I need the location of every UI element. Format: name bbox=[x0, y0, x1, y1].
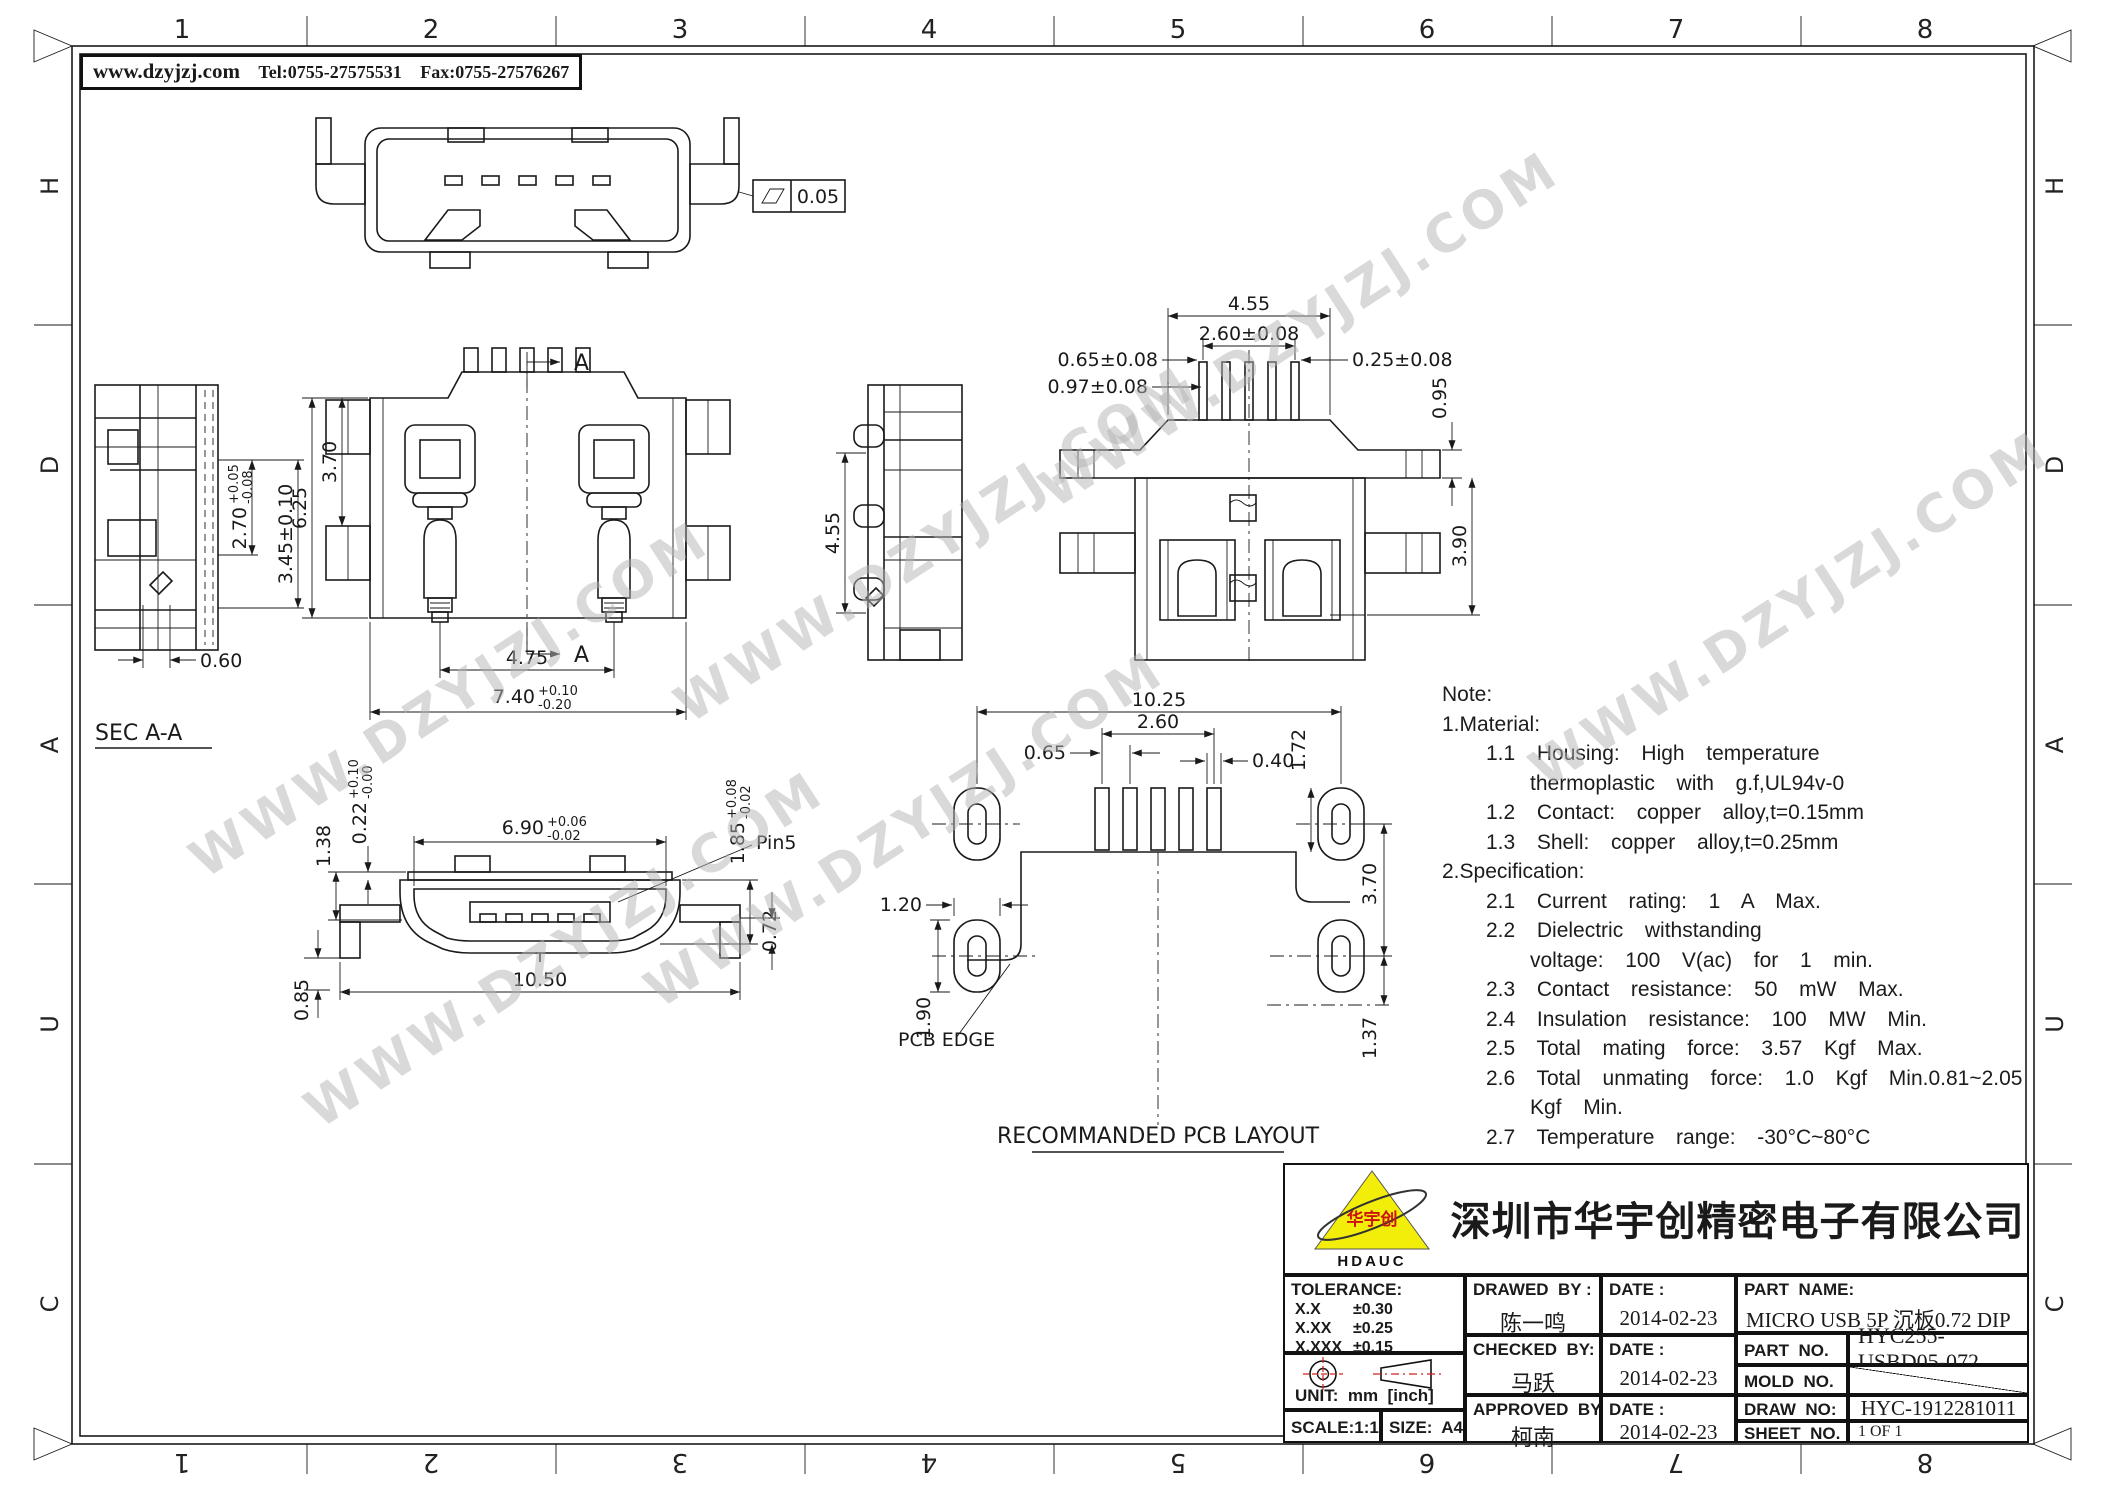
dim-4-55-rear: 4.55 bbox=[1228, 293, 1270, 315]
svg-text:1.38: 1.38 bbox=[313, 825, 335, 867]
svg-text:6.90: 6.90 bbox=[502, 817, 544, 839]
note-line: 1.3 Shell: copper alloy,t=0.25mm bbox=[1442, 828, 2032, 858]
draw-no-label-cell: DRAW NO: bbox=[1736, 1395, 1848, 1421]
front-face-view: Pin5 6.90 +0.06 -0.02 1.38 0.22 +0.10 -0… bbox=[291, 759, 796, 1021]
dim-3-70-pcb: 3.70 bbox=[1359, 863, 1381, 905]
note-line: 2.3 Contact resistance: 50 mW Max. bbox=[1442, 975, 2032, 1005]
approved-date-cell: DATE : 2014-02-23 bbox=[1601, 1395, 1736, 1443]
checked-by-label: CHECKED BY: bbox=[1467, 1337, 1599, 1360]
date-label: DATE : bbox=[1603, 1337, 1734, 1360]
dim-4-55-side: 4.55 bbox=[822, 512, 844, 554]
drawn-by-label: DRAWED BY : bbox=[1467, 1277, 1599, 1300]
dim-0-85: 0.85 bbox=[291, 979, 313, 1021]
flatness-icon bbox=[762, 189, 784, 203]
note-line: 2.7 Temperature range: -30°C~80°C bbox=[1442, 1123, 2032, 1153]
note-line: 2.4 Insulation resistance: 100 MW Min. bbox=[1442, 1005, 2032, 1035]
drawn-date: 2014-02-23 bbox=[1603, 1306, 1734, 1331]
projection-unit-cell: UNIT: mm [inch] bbox=[1283, 1353, 1465, 1410]
pcb-layout-view: 10.25 2.60 0.65 0.40 1.72 3.70 bbox=[880, 689, 1392, 1152]
dim-0-25: 0.25±0.08 bbox=[1352, 349, 1453, 371]
top-plan-view: 0.05 bbox=[316, 118, 845, 268]
part-no-label-cell: PART NO. bbox=[1736, 1333, 1848, 1365]
svg-text:1.85: 1.85 bbox=[727, 822, 749, 864]
svg-text:2.70: 2.70 bbox=[229, 507, 251, 549]
approved-by-cell: APPROVED BY: 柯南 bbox=[1465, 1395, 1601, 1443]
note-line: 1.Material: bbox=[1442, 710, 2032, 740]
svg-text:-0.20: -0.20 bbox=[538, 698, 572, 713]
dim-2-60: 2.60±0.08 bbox=[1199, 323, 1300, 345]
note-line: 2.6 Total unmating force: 1.0 Kgf Min.0.… bbox=[1442, 1064, 2032, 1094]
scale-cell: SCALE:1:1 bbox=[1283, 1410, 1381, 1443]
dim-3-90: 3.90 bbox=[1449, 525, 1471, 567]
drawing-sheet: 1 2 3 4 5 6 7 8 1 2 3 4 5 6 7 8 H D A U … bbox=[0, 0, 2105, 1488]
svg-text:0.95: 0.95 bbox=[1429, 377, 1451, 419]
title-block: 华宇创 HDAUC 深圳市华宇创精密电子有限公司 TOLERANCE: X.X±… bbox=[1283, 1163, 2029, 1443]
dim-0-95: 0.95 bbox=[1429, 377, 1451, 419]
dim-1-37: 1.37 bbox=[1359, 1017, 1381, 1059]
pcb-layout-title: RECOMMANDED PCB LAYOUT bbox=[997, 1124, 1320, 1149]
mold-no-label-cell: MOLD NO. bbox=[1736, 1365, 1848, 1395]
note-line: 2.5 Total mating force: 3.57 Kgf Max. bbox=[1442, 1034, 2032, 1064]
svg-text:+0.10: +0.10 bbox=[538, 684, 578, 699]
dim-7-40: 7.40 +0.10 -0.20 bbox=[493, 684, 578, 713]
note-line: 2.2 Dielectric withstanding bbox=[1442, 916, 2032, 946]
section-arrow-label-bottom: A bbox=[574, 643, 589, 668]
svg-text:-0.02: -0.02 bbox=[739, 785, 754, 819]
scale-label: SCALE:1:1 bbox=[1285, 1412, 1379, 1438]
size-cell: SIZE: A4 bbox=[1381, 1410, 1465, 1443]
section-aa-view: 2.70 +0.05 -0.08 3.45±0.10 0.60 SEC A-A bbox=[95, 385, 304, 748]
company-logo: 华宇创 HDAUC bbox=[1297, 1169, 1447, 1269]
section-arrow-label-top: A bbox=[574, 351, 589, 376]
part-no-label: PART NO. bbox=[1738, 1335, 1846, 1361]
date-label: DATE : bbox=[1603, 1397, 1734, 1420]
dim-2-60-pcb: 2.60 bbox=[1137, 711, 1179, 733]
dim-1-85: 1.85 +0.08 -0.02 bbox=[725, 779, 754, 864]
notes-block: Note: 1.Material: 1.1 Housing: High temp… bbox=[1442, 680, 2032, 1152]
dim-0-60: 0.60 bbox=[200, 650, 242, 672]
dim-1-38: 1.38 bbox=[313, 825, 335, 867]
approved-by-name: 柯南 bbox=[1467, 1420, 1599, 1452]
dim-1-20: 1.20 bbox=[880, 894, 922, 916]
checked-by-name: 马跃 bbox=[1467, 1366, 1599, 1398]
part-name-label: PART NAME: bbox=[1738, 1277, 2027, 1300]
side-view: 4.55 bbox=[822, 385, 962, 660]
flatness-callout: 0.05 bbox=[739, 180, 845, 212]
tolerance-cell: TOLERANCE: X.X±0.30 X.XX±0.25 X.XXX±0.15… bbox=[1283, 1275, 1465, 1353]
part-no-value-cell: HYC255-USBD05-072 bbox=[1848, 1333, 2029, 1365]
note-line: voltage: 100 V(ac) for 1 min. bbox=[1442, 946, 2032, 976]
dim-10-25: 10.25 bbox=[1132, 689, 1186, 711]
svg-text:0.85: 0.85 bbox=[291, 979, 313, 1021]
logo-cn-text: 华宇创 bbox=[1347, 1209, 1398, 1229]
rear-view: 4.55 2.60±0.08 0.65±0.08 0.97±0.08 0.25±… bbox=[1047, 293, 1480, 665]
draw-no-label: DRAW NO: bbox=[1738, 1397, 1846, 1420]
mold-no-label: MOLD NO. bbox=[1738, 1367, 1846, 1392]
sheet-no-value-cell: 1 OF 1 bbox=[1848, 1421, 2029, 1443]
dim-3-70: 3.70 bbox=[319, 441, 341, 483]
tol-val: ±0.25 bbox=[1353, 1320, 1393, 1338]
website-text: www.dzyjzj.com bbox=[93, 59, 240, 83]
tol-val: ±0.30 bbox=[1353, 1301, 1393, 1319]
dim-1-72: 1.72 bbox=[1288, 729, 1310, 771]
svg-text:3.70: 3.70 bbox=[319, 441, 341, 483]
dim-6-90: 6.90 +0.06 -0.02 bbox=[502, 815, 587, 844]
dim-0-72: 0.72 bbox=[759, 910, 781, 952]
sheet-no-label: SHEET NO. bbox=[1738, 1423, 1846, 1444]
checked-by-cell: CHECKED BY: 马跃 bbox=[1465, 1335, 1601, 1395]
note-line: Kgf Min. bbox=[1442, 1093, 2032, 1123]
dim-10-50: 10.50 bbox=[513, 969, 567, 991]
mold-no-blank-diagonal bbox=[1850, 1367, 2027, 1393]
note-line: 1.2 Contact: copper alloy,t=0.15mm bbox=[1442, 798, 2032, 828]
fax-text: Fax:0755-27576267 bbox=[420, 62, 569, 82]
drawn-by-name: 陈一鸣 bbox=[1467, 1306, 1599, 1338]
approved-date: 2014-02-23 bbox=[1603, 1420, 1734, 1445]
draw-no-value-cell: HYC-1912281011 bbox=[1848, 1395, 2029, 1421]
unit-label: UNIT: mm [inch] bbox=[1289, 1383, 1434, 1406]
note-line: 1.1 Housing: High temperature bbox=[1442, 739, 2032, 769]
checked-date-cell: DATE : 2014-02-23 bbox=[1601, 1335, 1736, 1395]
dim-0-65-rear: 0.65±0.08 bbox=[1057, 349, 1158, 371]
company-cell: 华宇创 HDAUC 深圳市华宇创精密电子有限公司 bbox=[1283, 1163, 2029, 1275]
dim-0-22: 0.22 +0.10 -0.00 bbox=[347, 759, 376, 844]
drawn-date-cell: DATE : 2014-02-23 bbox=[1601, 1275, 1736, 1335]
date-label: DATE : bbox=[1603, 1277, 1734, 1300]
svg-text:+0.10: +0.10 bbox=[347, 759, 362, 799]
svg-text:6.25: 6.25 bbox=[289, 487, 311, 529]
logo-abbr-text: HDAUC bbox=[1337, 1253, 1406, 1269]
svg-text:3.90: 3.90 bbox=[1449, 525, 1471, 567]
svg-text:-0.08: -0.08 bbox=[241, 470, 256, 504]
svg-text:+0.06: +0.06 bbox=[547, 815, 587, 830]
dim-0-97: 0.97±0.08 bbox=[1047, 376, 1148, 398]
mold-no-value-cell bbox=[1848, 1365, 2029, 1395]
pcb-edge-label: PCB EDGE bbox=[898, 1029, 995, 1051]
note-line: 2.Specification: bbox=[1442, 857, 2032, 887]
svg-text:3.70: 3.70 bbox=[1359, 863, 1381, 905]
tol-row: X.XX bbox=[1295, 1320, 1353, 1338]
svg-text:0.72: 0.72 bbox=[759, 910, 781, 952]
svg-text:7.40: 7.40 bbox=[493, 686, 535, 708]
svg-text:+0.05: +0.05 bbox=[227, 464, 242, 504]
main-top-view: A A 6.25 3.70 4.75 7.40 bbox=[289, 348, 730, 720]
svg-text:1.37: 1.37 bbox=[1359, 1017, 1381, 1059]
section-aa-label: SEC A-A bbox=[95, 721, 182, 746]
size-label: SIZE: A4 bbox=[1383, 1412, 1463, 1438]
note-line: thermoplastic with g.f,UL94v-0 bbox=[1442, 769, 2032, 799]
checked-date: 2014-02-23 bbox=[1603, 1366, 1734, 1391]
dim-6-25: 6.25 bbox=[289, 487, 311, 529]
svg-text:0.22: 0.22 bbox=[349, 802, 371, 844]
tel-text: Tel:0755-27575531 bbox=[258, 62, 401, 82]
drawn-by-cell: DRAWED BY : 陈一鸣 bbox=[1465, 1275, 1601, 1335]
sheet-no-label-cell: SHEET NO. bbox=[1736, 1421, 1848, 1443]
pin5-label: Pin5 bbox=[756, 832, 796, 854]
header-contact-box: www.dzyjzj.com Tel:0755-27575531 Fax:075… bbox=[80, 54, 582, 90]
draw-no-value: HYC-1912281011 bbox=[1861, 1396, 2017, 1421]
dim-0-65-pcb: 0.65 bbox=[1024, 742, 1066, 764]
approved-by-label: APPROVED BY: bbox=[1467, 1397, 1599, 1420]
tol-row: X.X bbox=[1295, 1301, 1353, 1319]
svg-text:-0.00: -0.00 bbox=[361, 765, 376, 799]
company-name: 深圳市华宇创精密电子有限公司 bbox=[1450, 1165, 2025, 1271]
note-line: Note: bbox=[1442, 680, 2032, 710]
tolerance-label: TOLERANCE: bbox=[1285, 1277, 1463, 1300]
note-line: 2.1 Current rating: 1 A Max. bbox=[1442, 887, 2032, 917]
flatness-value: 0.05 bbox=[797, 186, 839, 208]
svg-text:1.72: 1.72 bbox=[1288, 729, 1310, 771]
sheet-no-value: 1 OF 1 bbox=[1858, 1423, 1902, 1441]
svg-text:4.55: 4.55 bbox=[822, 512, 844, 554]
svg-text:+0.08: +0.08 bbox=[725, 779, 740, 819]
svg-text:-0.02: -0.02 bbox=[547, 829, 581, 844]
dim-4-75: 4.75 bbox=[506, 647, 548, 669]
